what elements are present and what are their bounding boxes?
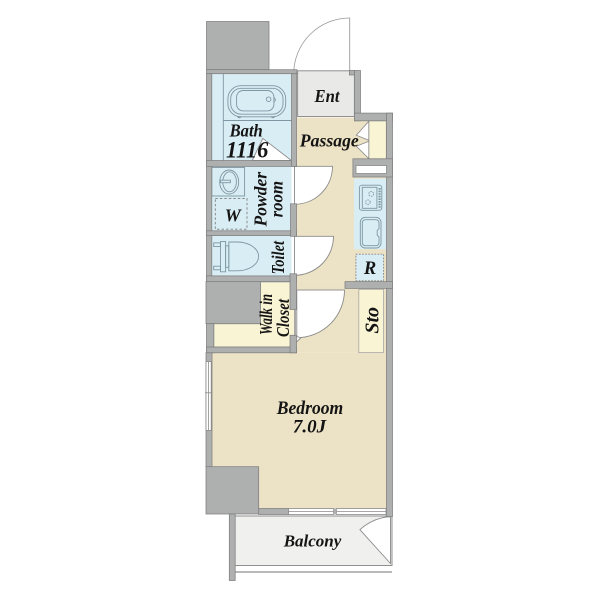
svg-text:Toilet: Toilet: [268, 240, 288, 274]
svg-text:Sto: Sto: [362, 307, 384, 334]
svg-text:room: room: [267, 181, 287, 217]
svg-text:W: W: [225, 206, 243, 226]
svg-text:Closet: Closet: [273, 298, 293, 337]
svg-text:1116: 1116: [226, 138, 269, 163]
svg-text:Balcony: Balcony: [283, 531, 342, 550]
svg-text:R: R: [363, 259, 376, 279]
svg-text:Ent: Ent: [314, 86, 341, 106]
svg-text:7.0J: 7.0J: [293, 417, 327, 438]
svg-text:Passage: Passage: [299, 131, 359, 151]
